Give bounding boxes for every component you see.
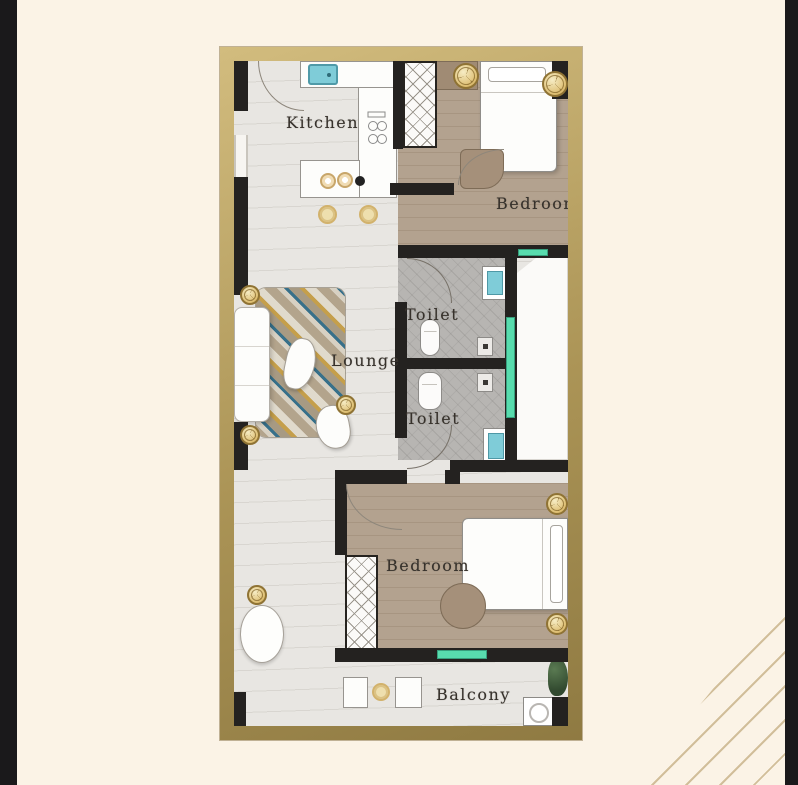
balcony-seat-icon bbox=[343, 677, 368, 708]
bedside-table-icon bbox=[440, 583, 486, 629]
sofa-icon bbox=[234, 307, 270, 422]
room-label-bedroom-bottom: Bedroom bbox=[386, 556, 470, 575]
floor-plan: Kitchen Bedroom Toilet Lounge Toilet Bed… bbox=[234, 61, 568, 726]
wall-segment bbox=[450, 460, 568, 472]
window-strip bbox=[234, 135, 248, 177]
room-label-toilet-top: Toilet bbox=[405, 305, 459, 324]
window-strip bbox=[506, 317, 515, 418]
wall-segment bbox=[552, 697, 568, 726]
cistern-icon bbox=[477, 373, 493, 392]
balcony-table-icon bbox=[372, 683, 390, 701]
room-label-bedroom-top: Bedroom bbox=[496, 194, 568, 213]
bar-stool-icon bbox=[318, 205, 337, 224]
ceiling-light-icon bbox=[546, 493, 568, 515]
wardrobe-icon bbox=[403, 61, 437, 148]
stove-knob-icon bbox=[355, 176, 365, 186]
wall-segment bbox=[234, 692, 246, 726]
corner-diagonal-lines bbox=[635, 600, 785, 785]
service-shaft bbox=[512, 257, 568, 460]
stove-burner-icon bbox=[320, 173, 336, 189]
poster-background: Kitchen Bedroom Toilet Lounge Toilet Bed… bbox=[0, 0, 798, 785]
pillow-icon bbox=[488, 67, 546, 82]
stove-burner-icon bbox=[337, 172, 353, 188]
room-label-balcony: Balcony bbox=[436, 685, 511, 704]
wall-segment bbox=[335, 470, 407, 484]
ceiling-light-icon bbox=[240, 425, 260, 445]
oven-column-icon bbox=[364, 109, 390, 153]
wall-segment bbox=[445, 470, 460, 484]
window-strip bbox=[518, 249, 548, 256]
door-swing-arc bbox=[407, 425, 452, 469]
balcony-seat-icon bbox=[395, 677, 422, 708]
ceiling-light-icon bbox=[240, 285, 260, 305]
ceiling-light-icon bbox=[542, 71, 568, 97]
bar-stool-icon bbox=[359, 205, 378, 224]
wall-segment bbox=[335, 483, 347, 555]
ceiling-light-icon bbox=[546, 613, 568, 635]
cistern-icon bbox=[477, 337, 493, 356]
room-label-toilet-bottom: Toilet bbox=[406, 409, 460, 428]
wall-segment bbox=[234, 61, 248, 111]
wc-icon bbox=[420, 319, 440, 356]
ceiling-light-icon bbox=[247, 585, 267, 605]
window-strip bbox=[437, 650, 487, 659]
left-edge-bar bbox=[0, 0, 17, 785]
right-edge-bar bbox=[785, 0, 798, 785]
plant-icon bbox=[548, 658, 568, 696]
ceiling-light-icon bbox=[336, 395, 356, 415]
wall-segment bbox=[398, 358, 512, 369]
washing-machine-icon bbox=[523, 697, 553, 726]
pillow-icon bbox=[550, 525, 563, 603]
room-label-kitchen: Kitchen bbox=[286, 113, 359, 132]
kitchen-sink-icon bbox=[308, 64, 338, 85]
wardrobe-icon bbox=[345, 555, 378, 650]
wc-icon bbox=[418, 372, 442, 410]
floor-plan-frame: Kitchen Bedroom Toilet Lounge Toilet Bed… bbox=[220, 47, 582, 740]
wall-segment bbox=[393, 61, 403, 149]
wall-segment bbox=[390, 183, 454, 195]
dining-table-icon bbox=[240, 605, 284, 663]
door-swing-arc bbox=[258, 61, 304, 111]
ceiling-light-icon bbox=[453, 63, 479, 89]
wall-segment bbox=[234, 177, 248, 295]
room-label-lounge: Lounge bbox=[331, 351, 401, 370]
